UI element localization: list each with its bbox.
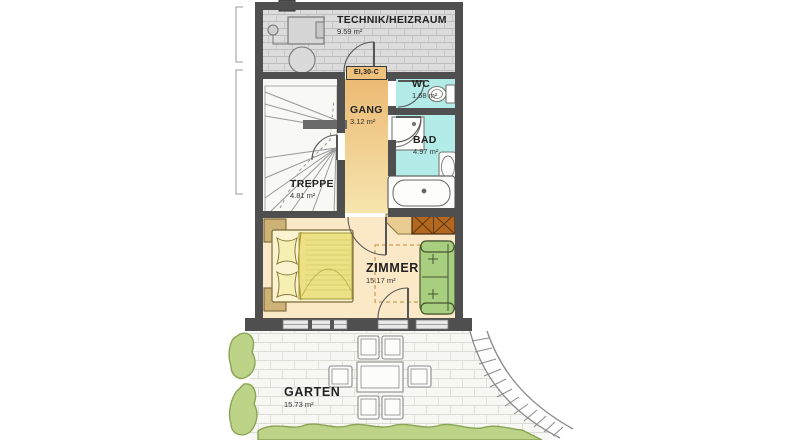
wall-left	[255, 2, 263, 318]
wall-top	[255, 2, 463, 10]
gang-floor	[345, 79, 388, 213]
pipe-fitting	[268, 25, 278, 35]
hedge-left-upper	[229, 333, 255, 378]
hedge-left-lower	[230, 384, 257, 435]
floorplan-canvas: TECHNIK/HEIZRAUM 9.59 m² WC 1.68 m² GANG…	[0, 0, 804, 440]
tank	[289, 47, 315, 73]
shower	[392, 117, 424, 150]
toilet	[428, 85, 455, 103]
garden-chair	[358, 396, 379, 419]
door-threshold	[378, 320, 408, 329]
garden-chair	[408, 366, 431, 387]
hedge-bottom	[258, 424, 542, 440]
wall-right	[455, 2, 463, 318]
fire-door-label: EI,30-C	[346, 66, 387, 80]
pillow	[277, 238, 297, 264]
garden-chair	[382, 336, 403, 359]
window	[283, 320, 347, 329]
window	[416, 320, 448, 329]
garden-chair	[329, 366, 352, 387]
bed	[272, 230, 353, 302]
floorplan-drawing	[0, 0, 804, 440]
dimension-marker	[236, 7, 243, 194]
sofa	[420, 241, 455, 314]
blanket	[299, 233, 352, 299]
garden-chair	[358, 336, 379, 359]
pillow	[277, 272, 297, 297]
garden-chair	[382, 396, 403, 419]
garden	[229, 331, 700, 440]
garden-table	[357, 362, 403, 392]
bathtub	[388, 176, 455, 210]
